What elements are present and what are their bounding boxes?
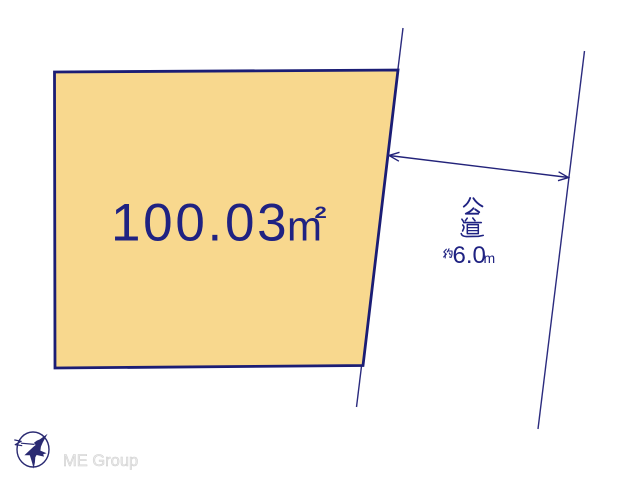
svg-text:100.03: 100.03 <box>111 194 289 253</box>
svg-text:ME Group: ME Group <box>63 452 138 470</box>
svg-text:2: 2 <box>315 203 327 222</box>
svg-text:6.0: 6.0 <box>453 242 486 269</box>
svg-text:m: m <box>484 250 496 266</box>
